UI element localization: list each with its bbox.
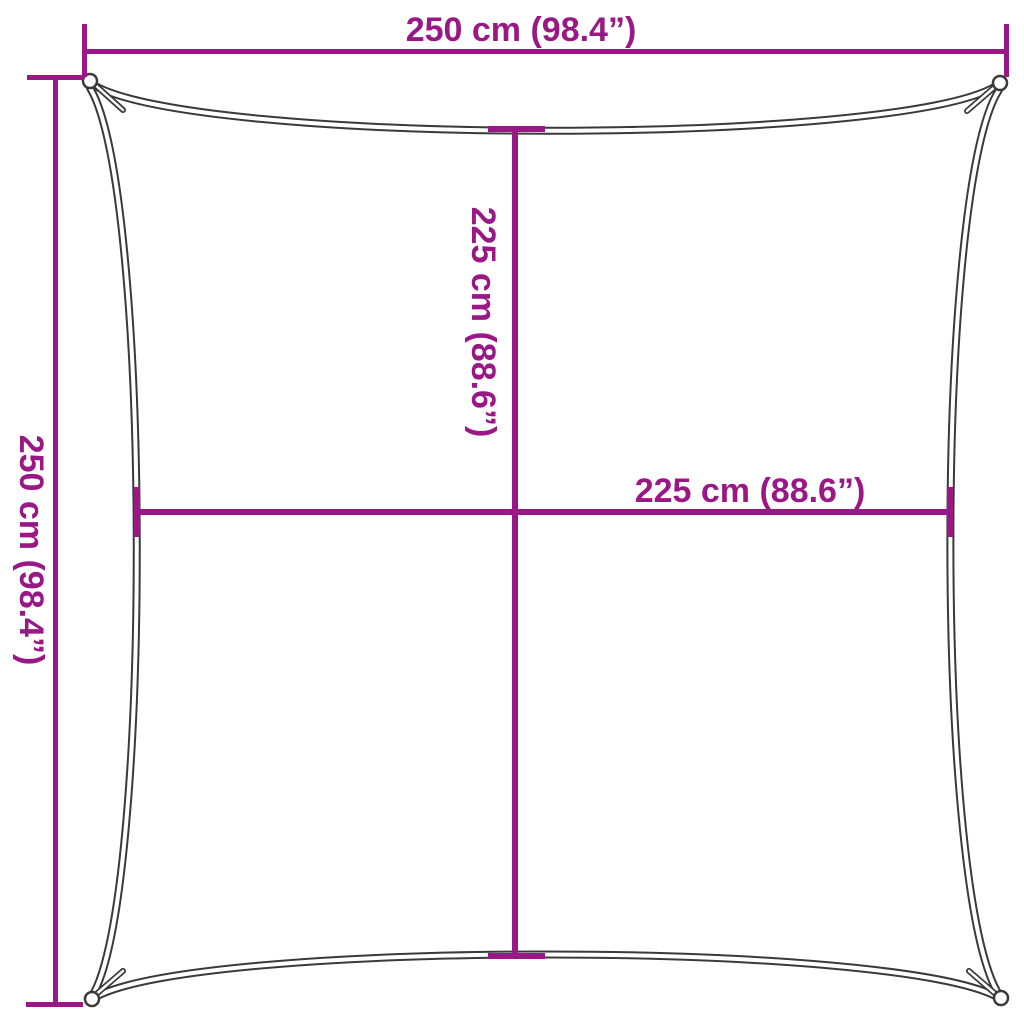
sail-edge-top-inner xyxy=(92,84,996,131)
sail-edge-bottom xyxy=(94,955,999,999)
dimension-tick-left-bottom xyxy=(26,1002,83,1007)
dimension-tick-inner-vertical-top xyxy=(488,126,545,132)
dimension-label-top: 250 cm (98.4”) xyxy=(406,13,637,47)
sail-edge-bottom-inner xyxy=(94,955,999,999)
sail-edge-right xyxy=(950,90,1000,996)
sail-edge-right-inner xyxy=(950,90,1000,996)
sail-edge-top xyxy=(92,84,996,131)
dimension-tick-left-top xyxy=(27,75,84,80)
dimension-tick-inner-vertical-bottom xyxy=(488,953,545,959)
dimension-line-inner-vertical xyxy=(512,129,518,958)
dimension-tick-top-right xyxy=(1004,24,1009,77)
sail-edge-left-inner xyxy=(90,88,137,996)
corner-ring-bottom-right xyxy=(994,991,1008,1005)
corner-ring-bottom-left xyxy=(85,992,99,1006)
dimension-diagram: 250 cm (98.4”) 250 cm (98.4”) 225 cm (88… xyxy=(0,0,1024,1024)
dimension-line-left xyxy=(53,77,58,1005)
dimension-tick-top-left xyxy=(82,24,87,77)
dimension-tick-inner-horizontal-left xyxy=(134,487,140,537)
dimension-tick-inner-horizontal-right xyxy=(947,487,953,537)
dimension-line-top xyxy=(84,49,1006,54)
sail-edge-left xyxy=(90,88,137,996)
corner-ring-top-right xyxy=(993,76,1007,90)
dimension-label-inner-horizontal: 225 cm (88.6”) xyxy=(635,474,866,508)
dimension-label-inner-vertical: 225 cm (88.6”) xyxy=(466,207,500,438)
dimension-label-left: 250 cm (98.4”) xyxy=(14,435,48,666)
